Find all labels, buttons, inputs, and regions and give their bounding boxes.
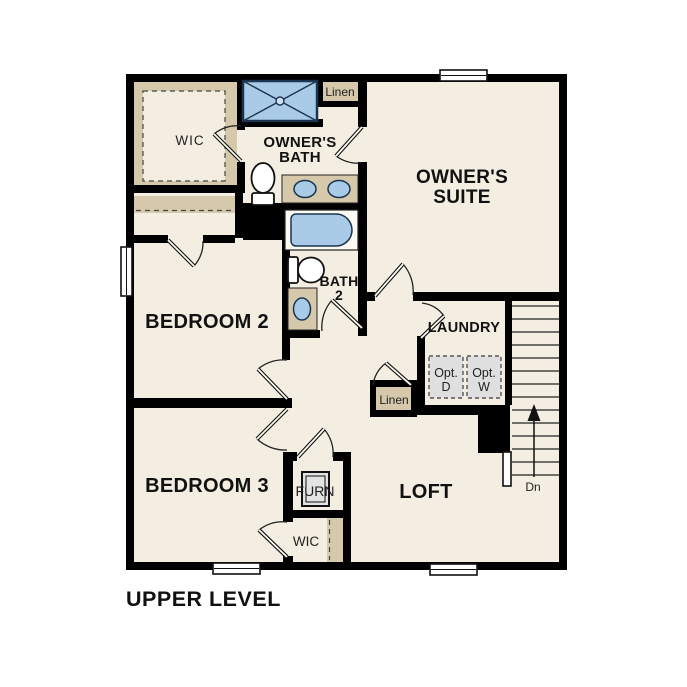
window-icon [430, 564, 477, 575]
room-label-bath2-line2: 2 [335, 287, 343, 303]
bathtub-icon [285, 210, 358, 250]
stair-railing [503, 452, 511, 486]
window-icon [213, 563, 260, 574]
shower-icon [243, 81, 317, 121]
label-opt-w-line1: Opt. [472, 366, 496, 380]
label-linen-upper: Linen [325, 85, 354, 99]
sink-icon [294, 181, 316, 198]
room-label-owners-suite-line1: OWNER'S [416, 167, 508, 188]
label-furnace: FURN [296, 483, 335, 499]
label-opt-d-line1: Opt. [434, 366, 458, 380]
window-icon [121, 247, 132, 296]
vanity [288, 288, 317, 330]
label-stairs-down: Dn [525, 480, 540, 494]
sink-icon [328, 181, 350, 198]
toilet-icon [252, 163, 275, 205]
room-label-bedroom2: BEDROOM 2 [145, 311, 269, 333]
label-linen-lower: Linen [379, 393, 408, 407]
sink-icon [294, 298, 311, 320]
double-vanity [282, 175, 358, 203]
upper-level-floor-plan: WIC OWNER'S BATH Linen OWNER'S SUITE BED… [0, 0, 687, 687]
room-label-loft: LOFT [399, 481, 452, 503]
label-opt-w-line2: W [478, 380, 490, 394]
floor-plan-page: WIC OWNER'S BATH Linen OWNER'S SUITE BED… [0, 0, 687, 687]
label-opt-d-line2: D [441, 380, 450, 394]
page-title: UPPER LEVEL [126, 587, 281, 611]
room-label-wic-lower: WIC [293, 534, 319, 549]
room-label-bedroom3: BEDROOM 3 [145, 475, 269, 497]
room-label-owners-bath-line2: BATH [279, 149, 321, 166]
window-icon [440, 70, 487, 81]
room-label-wic-upper: WIC [175, 133, 204, 148]
room-label-owners-suite-line2: SUITE [433, 187, 490, 208]
room-label-laundry: LAUNDRY [428, 320, 500, 336]
